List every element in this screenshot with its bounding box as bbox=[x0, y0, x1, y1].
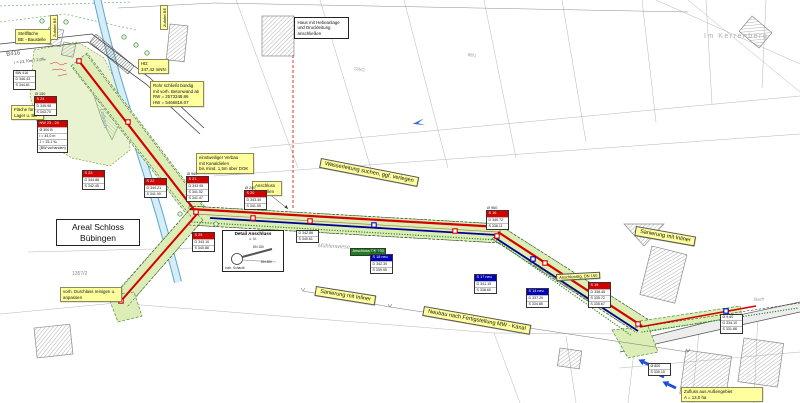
manhole-table-s16: Ø 960S 16D 340.72S 338.11 bbox=[486, 206, 509, 232]
note-durchlass: vorh. Durchlass reinigen u. anpassen bbox=[60, 287, 122, 302]
note-hd: HD: 347,42 mNN bbox=[138, 59, 169, 74]
table-row: S 338.60 bbox=[475, 287, 496, 293]
stream-label-lorbach: Lorbach bbox=[97, 108, 108, 129]
manhole-table-s17: S 17 neuD 341.15S 338.60 bbox=[474, 274, 497, 296]
banner-sanierung-inliner-1: Sanierung mit Inliner bbox=[314, 286, 376, 305]
note-verbau-kanaldielen: einstweiliger Verbau mit Kanaldielen bis… bbox=[196, 153, 254, 174]
manhole-table-s15: S 15D 338.45S 335.72S 335.67 bbox=[588, 282, 611, 310]
table-row: S 343.70 bbox=[35, 109, 56, 115]
strip-zufahrt-2: Zufahrt BE bbox=[160, 5, 168, 30]
road-label-b416: B416 bbox=[6, 50, 21, 59]
detail-label-dn150: DN 150 bbox=[253, 245, 264, 249]
manhole-table-s23: S 23D 344.88S 342.45 bbox=[82, 170, 105, 192]
table-row: S 340.61 bbox=[297, 236, 318, 242]
area-label-schloss-buebingen: Areal Schloss Bübingen bbox=[56, 219, 140, 246]
manhole-table-s20: Ø 240S 20D 343.40S 341.05 bbox=[244, 186, 267, 212]
table-row: S 342.45 bbox=[83, 183, 104, 189]
note-stellflaeche-be: Stellfläche BE - Baustelle bbox=[15, 29, 51, 44]
manhole-table-s13: Ø 9,60D 334.10S 331.88 bbox=[720, 314, 743, 335]
parcel-number: 1357/2 bbox=[72, 271, 87, 277]
table-row: S 340.88 bbox=[193, 245, 214, 251]
manhole-table-s25: S 25D 343.10S 340.88 bbox=[192, 232, 215, 254]
manhole-table-s22: S 22D 344.21S 341.90 bbox=[144, 178, 167, 200]
site-plan: Detail Anschluss o. M. DN 150 DN 300 vor… bbox=[0, 0, 800, 403]
parcel-number: 98/1 bbox=[467, 52, 476, 59]
detail-label-dn300: DN 300 bbox=[261, 260, 272, 264]
field-label-muehlenwiese: Mühlenwiese bbox=[318, 243, 350, 252]
table-row: S 334.85 bbox=[527, 301, 548, 307]
reach-table-nw-23-24: NW 23 - 24Ø 300 Bl = 44,0 mJ = 15,1 ‰(BW… bbox=[37, 120, 68, 154]
manhole-table-s24: Ø 150S 24D 345.98S 343.70 bbox=[34, 92, 57, 118]
table-row: S 341.47 bbox=[187, 195, 208, 201]
manhole-table-s18: Ø 960S 18 neuD 342.30S 339.95 bbox=[370, 250, 393, 276]
strip-zufahrt-1: Zufahrt BE bbox=[50, 15, 58, 40]
table-row: S 335.67 bbox=[589, 301, 610, 307]
label-overlay: Detail Anschluss o. M. DN 150 DN 300 vor… bbox=[0, 0, 800, 403]
note-zufluss-aussengebiet: Zufluss aus Außengebiet A = 13,0 ha bbox=[681, 387, 763, 402]
table-row: S 339.95 bbox=[371, 267, 392, 273]
stream-label-bach: Bach bbox=[754, 296, 765, 302]
banner-neubau-mw-kanal: Neubau nach Fertigstellung MW - Kanal bbox=[422, 306, 531, 335]
banner-anschlussleitung: Anschlussltg. DN 150 bbox=[556, 272, 601, 281]
table-row: S 341.05 bbox=[245, 203, 266, 209]
manhole-table-bw416: BW 416D 346.43S 344.61 bbox=[13, 70, 36, 91]
banner-sanierung-inliner-2: Sanierung mit Inliner bbox=[634, 226, 696, 246]
detail-scale: o. M. bbox=[223, 237, 283, 241]
manhole-table-s19: D 342.86S 340.61 bbox=[296, 227, 319, 245]
manhole-table-s14: S 14 neuD 337.20S 334.85 bbox=[526, 288, 549, 310]
table-row: S 331.88 bbox=[721, 326, 742, 332]
note-rohr-betonwand: Rohr schließt bündig mit vorh. Betonwand… bbox=[150, 81, 204, 107]
banner-wasserleitung: Wasserleitung suchen, ggf. verlegen bbox=[319, 158, 419, 187]
table-row: S 341.90 bbox=[145, 191, 166, 197]
street-label-im-kerrenberg: Im Kerrenberg bbox=[704, 33, 768, 42]
table-row: S 338.11 bbox=[487, 223, 508, 229]
detail-label-schacht: vorh. Schacht bbox=[225, 266, 245, 270]
table-row: (BW vorhanden) bbox=[38, 145, 67, 151]
manhole-table-s21: Ø 960S 21D 343.95S 341.52S 341.47 bbox=[186, 172, 209, 204]
table-row: S 344.61 bbox=[14, 82, 35, 88]
note-haus-hebeanlage: Haus mit Hebeanlage und Druckleitung ans… bbox=[294, 17, 349, 39]
detail-anschluss-box: Detail Anschluss o. M. DN 150 DN 300 vor… bbox=[222, 230, 284, 272]
parcel-number: 136/2 bbox=[353, 66, 365, 73]
table-row: S 330.15 bbox=[649, 369, 670, 375]
inflow-table: Ø 800S 330.15 bbox=[648, 360, 671, 378]
